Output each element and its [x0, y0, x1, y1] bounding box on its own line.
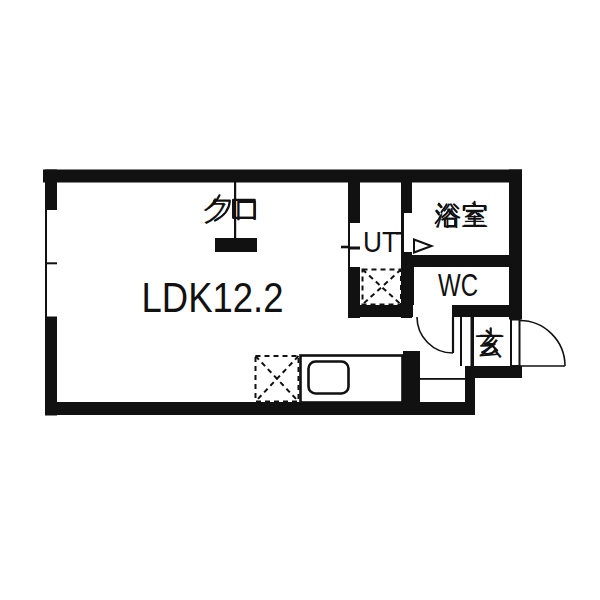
wall-kitchen-stub: [403, 351, 420, 415]
window-left-mullion: [45, 262, 57, 264]
wall-top: [43, 170, 522, 183]
bath-door-opening: [404, 213, 412, 252]
hall-step-line: [420, 378, 465, 380]
hatch-box-kitchen: [256, 356, 299, 402]
wc-door-arc: [417, 317, 453, 353]
wc-door-opening: [413, 305, 452, 317]
wall-step-vertical: [465, 366, 475, 415]
utility-entry-divider: [350, 247, 360, 250]
label-closet: クロ: [201, 193, 262, 226]
closet-shelf-bar: [215, 238, 257, 252]
entrance-door-leaf: [511, 320, 520, 367]
utility-entry-opening: [350, 223, 360, 267]
hatch-box-utility-diag1: [363, 270, 402, 305]
hatch-box-utility-border: [363, 270, 402, 305]
label-wc: WC: [438, 268, 478, 303]
entrance-step-line-outer: [460, 317, 462, 366]
utility-entry-tick: [341, 246, 350, 249]
floorplan: LDK12.2 UT WC クロ 浴室: [0, 0, 600, 600]
entrance-door-arc: [520, 321, 566, 367]
bath-door-triangle-icon: [414, 240, 432, 253]
floorplan-canvas: LDK12.2 UT WC クロ 浴室: [0, 0, 600, 600]
kitchen-sink: [309, 362, 349, 394]
wc-door-swing: [417, 317, 453, 353]
kitchen-counter: [301, 356, 403, 403]
entrance-step-line-inner: [471, 317, 475, 366]
label-utility: UT: [363, 225, 398, 258]
entrance-door-swing: [511, 320, 565, 367]
hatch-box-utility-diag2: [363, 270, 402, 305]
wall-right-upper: [509, 170, 522, 320]
labels: LDK12.2 UT WC クロ 浴室: [142, 193, 505, 360]
label-ldk: LDK12.2: [142, 273, 284, 321]
wall-bath-wc-divider: [404, 255, 522, 267]
hatch-box-utility: [363, 270, 402, 305]
